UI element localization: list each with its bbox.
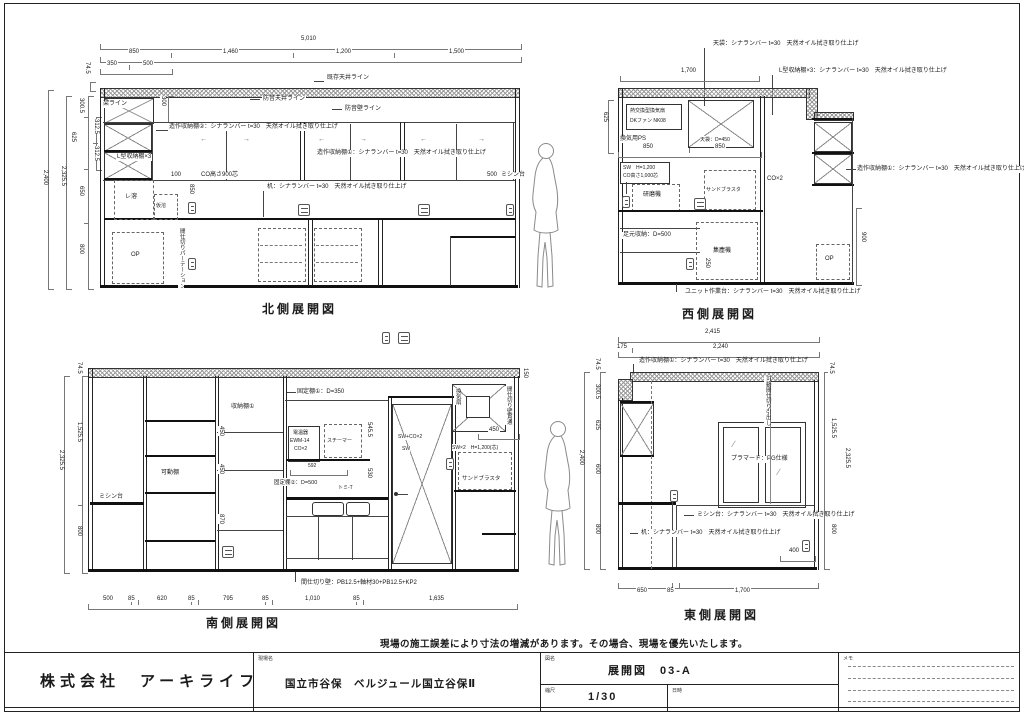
dim-label: 1,525.5 <box>830 418 836 438</box>
sandblaster-label: サンドブラスタ <box>462 474 500 482</box>
co-height-label: CO高さ900芯 <box>200 172 239 179</box>
dim-label: 5,010 <box>300 36 317 42</box>
movable-shelf-label: 可動棚 <box>160 470 180 477</box>
sewing-table-label: ミシン台 <box>98 494 124 501</box>
cabinet-face-line <box>651 381 652 569</box>
outlet-icon <box>222 546 234 558</box>
leader-line <box>156 130 168 131</box>
dim-label: 1,700 <box>734 588 751 594</box>
dim-label: 800 <box>78 244 84 254</box>
l-shelf-label: L型収納棚×3 <box>116 154 152 161</box>
door-panel <box>392 404 452 564</box>
drawer-unit <box>258 228 306 282</box>
dim-label: 300.5 <box>594 384 600 399</box>
cabinet-door-line <box>318 516 319 560</box>
cabinet-line <box>286 516 388 517</box>
existing-ceiling-label: 既存天井ライン <box>326 75 370 82</box>
shelf-line <box>145 540 215 542</box>
dim-line <box>66 96 72 290</box>
sw-co-label: SW+CO×2 <box>398 434 422 440</box>
dim-label: 1,525.5 <box>76 422 82 442</box>
titleblock-divider <box>540 652 541 711</box>
dim-label: 85 <box>261 596 270 602</box>
sink-bowl <box>312 502 344 516</box>
equipment-label: 仮溶 <box>156 202 166 209</box>
memo-line <box>848 678 1014 679</box>
door-head <box>388 396 454 398</box>
outlet-icon <box>188 202 196 214</box>
shelf1-callout: 造作収納棚①：シナランバー t=30 天然オイル拭き取り仕上げ <box>638 358 809 365</box>
dim-tick <box>84 169 89 170</box>
leader-line <box>314 81 324 82</box>
dim-label: 85 <box>352 596 361 602</box>
tap-label: トミ-T <box>338 484 353 491</box>
dim-label: 620 <box>156 596 168 602</box>
sw-label: SW <box>402 446 410 452</box>
soundproof-wall-label: 防音壁ライン <box>344 106 382 113</box>
ceiling-band <box>630 372 819 382</box>
sink-bowl <box>346 502 370 516</box>
dim-line <box>618 337 820 343</box>
dim-label: 85 <box>187 596 196 602</box>
date-label: 日時 <box>672 687 682 694</box>
scale-label: 縮尺 <box>545 687 555 694</box>
floor-line <box>88 569 518 572</box>
north-view-title: 北側展開図 <box>262 300 337 317</box>
op-label: OP <box>824 256 835 263</box>
west-view-title: 西側展開図 <box>682 305 757 322</box>
shelf1-callout: 造作収納棚①：シナランバー t=30 天然オイル拭き取り仕上げ <box>316 150 487 157</box>
leader-line <box>630 533 638 534</box>
equipment-label: レ溶 <box>124 194 138 201</box>
slide-arrow-icon: ← <box>420 136 427 143</box>
vent-fan-note: 間仕切り壁貫通 <box>505 386 511 425</box>
vent-fan-core <box>466 396 490 418</box>
sewing-counter-line <box>450 236 515 238</box>
wall-right <box>814 380 819 570</box>
equipment-box <box>458 452 512 490</box>
dim-label: 850 <box>128 49 140 55</box>
shelf-line <box>217 470 283 471</box>
dim-label: 1,700 <box>680 68 697 74</box>
floor-line <box>618 567 817 570</box>
dim-label: 400 <box>788 548 800 554</box>
cabinet-bottom-line <box>103 180 515 181</box>
dim-tick <box>84 223 89 224</box>
shelf-line <box>145 492 215 494</box>
outlet-icon <box>670 490 678 502</box>
shelf-line <box>620 455 654 457</box>
dim-label: 1,010 <box>304 596 321 602</box>
dim-line <box>100 57 522 63</box>
desk-line <box>676 505 814 506</box>
slide-arrow-icon: → <box>478 136 485 143</box>
dim-line <box>290 470 348 476</box>
slide-arrow-icon: ← <box>318 136 325 143</box>
unit-workbench-callout: ユニット作業台：シナランバー t=30 天然オイル拭き取り仕上げ <box>684 289 862 296</box>
dim-line <box>100 69 173 75</box>
dim-tick <box>84 117 89 118</box>
shelf-line <box>812 184 854 186</box>
dim-label: 85 <box>666 588 675 594</box>
kick-line <box>286 558 388 559</box>
glass-mark: ∕ <box>733 440 735 449</box>
foot-storage-label: 足元収納：D=500 <box>622 232 672 239</box>
cabinet-top-line <box>103 122 515 123</box>
leader-line <box>684 515 694 516</box>
slide-arrow-icon: → <box>360 136 367 143</box>
shelf-line <box>454 490 516 492</box>
dim-line <box>90 82 96 92</box>
tenbukuro-callout: 天袋：シナランバー t=30 天然オイル拭き取り仕上げ <box>712 41 860 48</box>
steamer-label: スチーマー <box>327 437 352 444</box>
drawing-name: 展開図 03-A <box>608 662 692 678</box>
leader-line <box>398 494 408 495</box>
dim-tick <box>171 53 172 58</box>
titleblock-bottom-line <box>4 707 1020 708</box>
site-name: 国立市谷保 ベルジュール国立谷保Ⅱ <box>285 676 476 691</box>
leader-line <box>263 191 264 217</box>
shelf2-callout: 造作収納棚②：シナランバー t=30 天然オイル拭き取り仕上げ <box>168 124 339 131</box>
dim-label: 175 <box>616 344 628 350</box>
dim-label: 85 <box>127 596 136 602</box>
drawing-name-label: 図名 <box>545 655 555 662</box>
dim-tick <box>129 65 130 70</box>
sandblaster-label: サンドブラスタ <box>706 186 741 193</box>
heat-exchanger-model: DKファン NK08 <box>630 117 666 124</box>
outlet-icon <box>802 540 810 552</box>
dim-line <box>64 376 70 574</box>
slide-arrow-icon: ← <box>200 136 207 143</box>
dim-line <box>82 376 88 574</box>
dim-label: 312.5 <box>93 119 99 134</box>
dim-label: 800 <box>594 524 600 534</box>
shelf-line <box>217 432 283 433</box>
dim-line <box>618 583 819 589</box>
dim-tick <box>632 348 633 353</box>
floor-line <box>618 282 854 285</box>
desk-leg <box>308 220 313 286</box>
storage1-label: 収納棚① <box>230 404 255 411</box>
titleblock-divider <box>838 652 839 711</box>
dim-label: 850 <box>188 184 194 194</box>
memo-line <box>848 690 1014 691</box>
outlet-icon <box>686 258 694 270</box>
dim-line <box>620 76 760 82</box>
dim-tick <box>363 600 364 605</box>
shelf-line <box>285 400 388 401</box>
grinder-label: 研磨機 <box>642 192 662 199</box>
dim-label: 450 <box>218 464 224 474</box>
dim-line <box>618 152 762 158</box>
dim-label: 2,325.5 <box>844 448 850 468</box>
dim-label: 870 <box>218 514 224 524</box>
dim-label: 450 <box>488 427 500 433</box>
upper-cabinet-box <box>104 124 152 152</box>
leader-line <box>846 169 856 170</box>
dim-label: 500 <box>102 596 114 602</box>
dim-label: 650 <box>636 588 648 594</box>
dim-label: 250 <box>704 258 710 268</box>
dim-tick <box>78 505 83 506</box>
dim-tick <box>679 583 680 588</box>
leader-line <box>295 572 296 582</box>
shelf-line <box>812 118 854 120</box>
memo-line <box>848 701 1014 702</box>
outlet-icon <box>694 198 706 210</box>
desk-callout: 机：シナランバー t=30 天然オイル拭き取り仕上げ <box>266 184 408 191</box>
dim-label: 2,415 <box>704 329 721 335</box>
titleblock-divider <box>540 684 838 685</box>
fixed-shelf2-callout: 固定棚②：D=500 <box>274 478 317 486</box>
dim-tick <box>272 600 273 605</box>
dim-label: 800 <box>76 526 82 536</box>
shelf-line <box>145 455 215 457</box>
dim-label: 74.5 <box>828 362 834 374</box>
dim-label: 600 <box>594 464 600 474</box>
wall-right <box>760 96 765 284</box>
dim-label: 795 <box>222 596 234 602</box>
cabinet-line <box>620 228 700 229</box>
slide-arrow-icon: → <box>243 136 250 143</box>
leader-line <box>676 284 677 292</box>
memo-label: メモ <box>843 655 853 662</box>
dim-label: 625 <box>594 420 600 430</box>
dim-tick <box>394 53 395 58</box>
soundproof-ceiling-label: 防音天井ライン <box>262 96 306 103</box>
movable-partition-label: 可動間仕切り引出し <box>764 376 770 426</box>
outlet-icon <box>506 204 514 216</box>
south-view-title: 南側展開図 <box>206 614 281 631</box>
partition-vertical-label: 間仕切りパーテーション <box>178 228 184 289</box>
co-height-label: CO高さ1,000芯 <box>623 172 658 179</box>
dim-label: 650 <box>78 186 84 196</box>
op-label: OP <box>130 252 141 259</box>
leader-line <box>332 109 342 110</box>
outlet-icon <box>188 258 196 270</box>
co2-label: CO×2 <box>766 176 784 183</box>
vent-ps-label: 換気用PS <box>619 136 647 143</box>
dim-label: 500 <box>142 61 154 67</box>
leader-line <box>287 392 296 393</box>
person-figure <box>522 140 568 298</box>
water-heater-label: 電温器 <box>293 429 308 436</box>
dim-label: 2,325.5 <box>60 166 66 186</box>
dim-label: 1,500 <box>448 49 465 55</box>
dim-tick <box>138 600 139 605</box>
dim-label: 300 <box>160 96 166 106</box>
dim-label: 530 <box>366 468 372 478</box>
dim-label: 450 <box>218 426 224 436</box>
dim-line <box>48 90 54 290</box>
desk-callout: 机：シナランバー t=30 天然オイル拭き取り仕上げ <box>640 530 782 537</box>
site-notice: 現場の施工誤差により寸法の増減があります。その場合、現場を優先いたします。 <box>380 636 748 650</box>
drawer-line <box>260 245 302 246</box>
cabinet-line <box>620 252 700 253</box>
drawer-line <box>316 262 358 263</box>
dim-line <box>478 434 520 440</box>
dim-line <box>780 556 816 562</box>
sink-counter-line <box>286 497 388 500</box>
workbench-line <box>618 210 763 212</box>
dim-label: 74.5 <box>84 62 90 74</box>
dim-line <box>608 100 614 154</box>
dim-label: 350 <box>106 61 118 67</box>
dim-line <box>584 372 590 570</box>
titleblock-top-line <box>4 652 1020 653</box>
wall-left <box>88 368 93 572</box>
leader-line <box>250 99 260 100</box>
dim-label: 1,460 <box>222 49 239 55</box>
dim-tick <box>93 143 98 144</box>
dim-label: 312.5 <box>93 146 99 161</box>
dim-label: 592 <box>308 463 316 469</box>
outlet-icon <box>622 196 630 208</box>
dim-label: 74.5 <box>594 358 600 370</box>
wall-right <box>514 376 519 572</box>
outlet-icon <box>382 332 390 344</box>
water-heater-model: EWM-14 <box>290 438 309 444</box>
dim-label: 500 <box>486 172 498 178</box>
shelf1-callout: 造作収納棚①：シナランバー t=30 天然オイル拭き取り仕上げ <box>856 166 1024 173</box>
dim-line <box>856 208 862 286</box>
dim-label: 2,325.5 <box>58 450 64 470</box>
dim-label: 900 <box>860 232 866 242</box>
plamade-window-label: プラマード：PG仕様 <box>730 456 789 463</box>
dim-label: 850 <box>642 144 654 150</box>
beam-line-label: 梁ライン <box>102 101 128 108</box>
dim-label: 74.5 <box>76 362 82 374</box>
leader-line <box>626 182 627 194</box>
dim-label: 2,400 <box>42 170 48 185</box>
sewing-counter-line <box>90 502 144 505</box>
wall-left <box>618 88 623 284</box>
vent-fan-label: 換気扇 <box>454 388 460 405</box>
dim-label: 800 <box>830 524 836 534</box>
dim-label: 150 <box>522 368 528 378</box>
dim-label: 545.5 <box>366 422 372 437</box>
l-shelf-callout: L型収納棚×3：シナランバー t=30 天然オイル拭き取り仕上げ <box>778 68 948 75</box>
dim-label: 850 <box>714 144 726 150</box>
heat-exchanger-label: 熱交換型換気扇 <box>630 107 665 114</box>
desk-leg <box>378 220 383 286</box>
shelf-line <box>482 533 516 535</box>
ceiling-band <box>618 88 810 98</box>
outlet-icon <box>398 332 410 344</box>
upper-cabinet-box <box>620 403 654 457</box>
dim-label: 1,635 <box>428 596 445 602</box>
partition <box>283 376 287 569</box>
drawer-line <box>316 245 358 246</box>
switch-icon <box>446 458 454 470</box>
dim-tick <box>293 53 294 58</box>
dust-collector-label: 集塵機 <box>712 248 732 255</box>
dim-tick <box>689 148 690 153</box>
sewing-table-callout: ミシン台：シナランバー t=30 天然オイル拭き取り仕上げ <box>696 512 856 519</box>
shelf-line <box>286 459 370 461</box>
glass-mark: ∕ <box>778 468 780 477</box>
company-name: 株式会社 アーキライフ <box>40 670 259 691</box>
shelf-line <box>145 420 215 422</box>
dim-line <box>168 96 174 123</box>
outlet-icon <box>298 204 310 216</box>
fixed-shelf1-callout: 固定棚①：D=350 <box>296 389 345 396</box>
dim-label: 300.5 <box>78 98 84 113</box>
memo-line <box>848 666 1014 667</box>
east-view-title: 東側展開図 <box>684 606 759 623</box>
shelf-line <box>217 530 283 531</box>
drawer-unit <box>314 228 362 282</box>
wall-right <box>515 88 520 288</box>
water-heater-co: CO×2 <box>294 446 307 452</box>
person-figure <box>534 418 580 576</box>
shelf-line <box>104 150 152 152</box>
cabinet-divider <box>152 122 153 180</box>
drawer-line <box>260 262 302 263</box>
tenbukuro-label: 天袋：D=450 <box>700 136 730 143</box>
dim-label: 2,240 <box>712 344 729 350</box>
sewing-counter-line <box>618 502 676 505</box>
dim-label: 1,200 <box>335 49 352 55</box>
outlet-icon <box>418 204 430 216</box>
sw2-label: SW×2 H=1,200(芯) <box>452 444 498 451</box>
site-name-label: 現場名 <box>258 655 273 662</box>
dim-label: 625 <box>602 112 608 122</box>
upper-cabinet-box <box>814 122 852 152</box>
partition-wall-callout: 間仕切り壁：PB12.5+軸材30+PB12.5+KP2 <box>300 580 418 587</box>
cabinet-door-line <box>352 516 353 560</box>
window-pane <box>723 427 759 503</box>
scale-value: 1/30 <box>588 691 617 703</box>
ceiling-band <box>88 368 520 378</box>
dim-label: 100 <box>170 172 182 178</box>
counter-side-line <box>450 236 451 286</box>
cabinet-side-line <box>852 118 853 284</box>
dim-line <box>824 372 830 570</box>
dim-tick <box>198 600 199 605</box>
sw-label: SW H=1,200 <box>623 164 655 171</box>
dim-line <box>88 604 518 610</box>
drawing-sheet: 5,010 850 1,460 1,200 1,500 350 500 74.5… <box>0 0 1024 716</box>
dim-line <box>600 372 606 570</box>
